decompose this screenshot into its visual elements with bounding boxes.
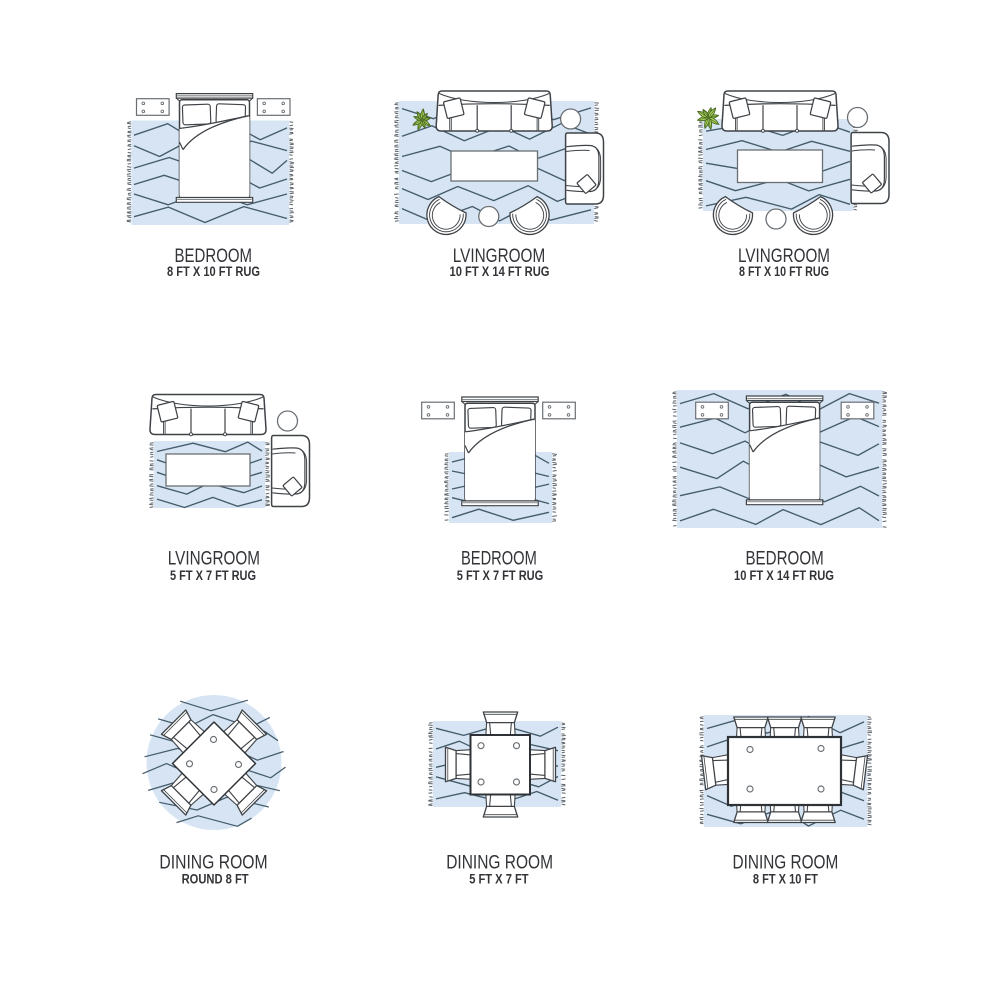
svg-text:5 FT X 7 FT RUG: 5 FT X 7 FT RUG	[170, 568, 256, 584]
svg-text:DINING ROOM: DINING ROOM	[446, 851, 553, 873]
svg-text:8 FT X 10 FT RUG: 8 FT X 10 FT RUG	[167, 264, 260, 280]
svg-text:5 FT X 7 FT: 5 FT X 7 FT	[469, 872, 529, 888]
svg-text:5 FT X 7 FT RUG: 5 FT X 7 FT RUG	[457, 568, 544, 584]
svg-text:LVINGROOM: LVINGROOM	[168, 548, 260, 570]
svg-text:10 FT X 14 FT RUG: 10 FT X 14 FT RUG	[450, 264, 550, 280]
svg-text:DINING ROOM: DINING ROOM	[159, 851, 267, 873]
svg-text:BEDROOM: BEDROOM	[461, 548, 537, 570]
svg-text:DINING ROOM: DINING ROOM	[733, 851, 839, 873]
svg-text:10 FT X 14 FT RUG: 10 FT X 14 FT RUG	[734, 568, 834, 584]
svg-text:8 FT X 10 FT RUG: 8 FT X 10 FT RUG	[739, 264, 829, 280]
svg-text:8 FT X 10 FT: 8 FT X 10 FT	[753, 872, 818, 888]
svg-text:BEDROOM: BEDROOM	[745, 548, 823, 570]
svg-text:ROUND 8 FT: ROUND 8 FT	[182, 872, 249, 888]
